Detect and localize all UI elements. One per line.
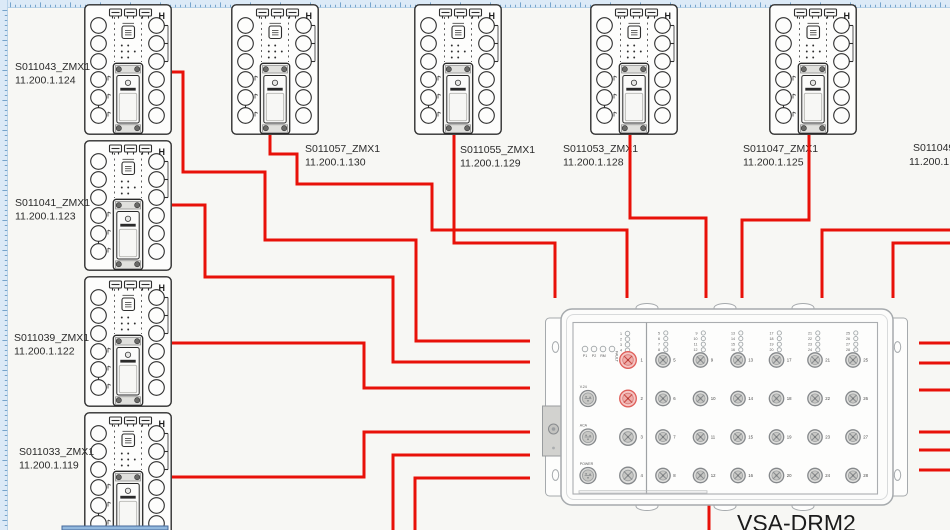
drm-led-num-6: 6 <box>658 337 660 341</box>
drm-port-21[interactable] <box>808 353 822 367</box>
diagram-canvas: H <box>0 0 950 530</box>
drm-led-num-19: 19 <box>770 343 774 347</box>
drm-led-19 <box>777 342 781 346</box>
drm-port-13[interactable] <box>731 353 745 367</box>
drm-port-9[interactable] <box>693 353 707 367</box>
drm-led-num-28: 28 <box>846 348 850 352</box>
drm-led-12 <box>701 348 705 352</box>
drm-port-16[interactable] <box>731 468 745 482</box>
drm-port-12[interactable] <box>693 468 707 482</box>
drm-port-num-17: 17 <box>787 358 792 363</box>
device-s011047-zmx1[interactable] <box>770 5 856 134</box>
drm-led-num-27: 27 <box>846 343 850 347</box>
drm-port-1[interactable] <box>620 352 637 369</box>
drm-led-14 <box>739 337 743 341</box>
drm-port-num-19: 19 <box>787 435 792 440</box>
label-s011033-ip: 11.200.1.119 <box>19 460 79 472</box>
drm-port-5[interactable] <box>656 353 670 367</box>
drm-aux-label-power: POWER <box>580 462 594 466</box>
drm-port-3[interactable] <box>620 429 637 446</box>
drm-led-9 <box>701 331 705 335</box>
drm-status-led-label-p2: P2 <box>592 354 596 358</box>
drm-port-num-10: 10 <box>711 396 716 401</box>
drm-led-num-8: 8 <box>658 348 660 352</box>
drm-led-num-25: 25 <box>846 331 850 335</box>
drm-port-num-22: 22 <box>825 396 830 401</box>
label-s011039-ip: 11.200.1.122 <box>14 346 75 358</box>
drm-port-22[interactable] <box>808 391 822 405</box>
drm-port-7[interactable] <box>656 430 670 444</box>
drm-status-led-label-fault: FAULT <box>615 351 619 363</box>
drm-led-3 <box>625 342 630 347</box>
drm-port-19[interactable] <box>769 430 783 444</box>
drm-status-led-fault <box>609 346 615 352</box>
drm-led-num-24: 24 <box>808 348 812 352</box>
drm-port-num-21: 21 <box>825 358 830 363</box>
drm-led-num-5: 5 <box>658 331 660 335</box>
drm-port-17[interactable] <box>769 353 783 367</box>
drm-port-23[interactable] <box>808 430 822 444</box>
drm-port-num-15: 15 <box>748 435 753 440</box>
drm-port-27[interactable] <box>846 430 860 444</box>
label-s011033-name: S011033_ZMX1 <box>19 446 94 458</box>
drm-port-num-27: 27 <box>863 435 868 440</box>
drm-port-num-16: 16 <box>748 473 753 478</box>
drm-led-num-11: 11 <box>694 343 698 347</box>
drm-port-num-25: 25 <box>863 358 868 363</box>
label-s011049-name: S011049 <box>913 142 950 154</box>
drm-led-num-22: 22 <box>808 337 812 341</box>
drm-panel <box>573 323 878 495</box>
drm-port-num-14: 14 <box>748 396 753 401</box>
drm-led-17 <box>777 331 781 335</box>
drm-led-num-9: 9 <box>696 331 698 335</box>
drm-port-num-18: 18 <box>787 396 792 401</box>
device-s011053-zmx1[interactable] <box>591 5 677 134</box>
drm-led-11 <box>701 342 705 346</box>
drm-aux-port-power[interactable] <box>580 468 596 484</box>
drm-port-11[interactable] <box>693 430 707 444</box>
drm-led-num-20: 20 <box>770 348 774 352</box>
drm-aux-port-aca[interactable] <box>580 429 596 445</box>
device-s011055-zmx1[interactable] <box>415 5 501 134</box>
drm-port-10[interactable] <box>693 391 707 405</box>
drm-led-num-7: 7 <box>658 343 660 347</box>
drm-led-num-3: 3 <box>620 343 622 347</box>
label-s011043-ip: 11.200.1.124 <box>15 75 76 87</box>
drm-status-led-p1 <box>582 346 588 352</box>
drm-led-15 <box>739 342 743 346</box>
drm-port-15[interactable] <box>731 430 745 444</box>
drm-port-num-11: 11 <box>711 435 716 440</box>
drm-status-led-label-rm: RM <box>600 354 606 358</box>
label-s011055-ip: 11.200.1.129 <box>460 158 521 170</box>
drm-port-num-12: 12 <box>711 473 716 478</box>
drm-aux-label-v24: V.24 <box>580 385 587 389</box>
drm-port-num-23: 23 <box>825 435 830 440</box>
drm-port-28[interactable] <box>846 468 860 482</box>
drm-aux-port-v24[interactable] <box>580 391 596 407</box>
drm-led-24 <box>816 348 820 352</box>
drm-led-18 <box>777 337 781 341</box>
drm-port-4[interactable] <box>620 467 637 484</box>
drm-led-num-16: 16 <box>731 348 735 352</box>
drm-port-25[interactable] <box>846 353 860 367</box>
label-s011047-name: S011047_ZMX1 <box>743 143 818 155</box>
label-s011039-name: S011039_ZMX1 <box>14 332 89 344</box>
label-s011053-ip: 11.200.1.128 <box>563 157 624 169</box>
drm-led-num-1: 1 <box>620 332 622 336</box>
drm-led-num-14: 14 <box>731 337 735 341</box>
drm-led-num-12: 12 <box>694 348 698 352</box>
drm-led-25 <box>854 331 858 335</box>
drm-led-num-18: 18 <box>770 337 774 341</box>
label-s011041-ip: 11.200.1.123 <box>15 211 76 223</box>
drm-title: VSA-DRM2 <box>737 510 856 530</box>
drm-led-21 <box>816 331 820 335</box>
drm-led-23 <box>816 342 820 346</box>
drm-led-num-4: 4 <box>620 349 622 353</box>
drm-led-6 <box>664 337 668 341</box>
partial-device-bottom[interactable] <box>62 526 168 530</box>
drm-led-26 <box>854 337 858 341</box>
drm-led-num-23: 23 <box>808 343 812 347</box>
drm-port-14[interactable] <box>731 391 745 405</box>
drm-status-led-p2 <box>591 346 597 352</box>
label-s011049-ip: 11.200.1 <box>909 156 949 168</box>
drm-port-num-26: 26 <box>863 396 868 401</box>
drm-led-8 <box>664 348 668 352</box>
device-s011057-zmx1[interactable] <box>232 5 318 134</box>
drm-port-8[interactable] <box>656 468 670 482</box>
drm-port-26[interactable] <box>846 391 860 405</box>
drm-led-27 <box>854 342 858 346</box>
drm-led-7 <box>664 342 668 346</box>
drm-port-num-13: 13 <box>748 358 753 363</box>
label-s011053-name: S011053_ZMX1 <box>563 143 638 155</box>
device-s011041-zmx1[interactable] <box>85 141 171 270</box>
drm-led-1 <box>625 331 630 336</box>
drm-led-28 <box>854 348 858 352</box>
drm-status-led-rm <box>600 346 606 352</box>
drm-led-10 <box>701 337 705 341</box>
drm-aux-label-aca: ACA <box>580 423 588 427</box>
ruler-left <box>0 0 8 530</box>
drm-led-22 <box>816 337 820 341</box>
drm-port-num-28: 28 <box>863 473 868 478</box>
drm-led-5 <box>664 331 668 335</box>
drm-port-20[interactable] <box>769 468 783 482</box>
drm-led-num-2: 2 <box>620 338 622 342</box>
drm-port-18[interactable] <box>769 391 783 405</box>
drm-led-2 <box>625 337 630 342</box>
device-s011043-zmx1[interactable] <box>85 5 171 134</box>
drm-port-num-24: 24 <box>825 473 830 478</box>
drm-led-13 <box>739 331 743 335</box>
drm-port-num-20: 20 <box>787 473 792 478</box>
drm-port-6[interactable] <box>656 391 670 405</box>
drm-led-num-21: 21 <box>808 331 812 335</box>
drm-led-num-10: 10 <box>694 337 698 341</box>
drm-led-16 <box>739 348 743 352</box>
device-s011039-zmx1[interactable] <box>85 277 171 406</box>
label-s011043-name: S011043_ZMX1 <box>15 61 90 73</box>
label-s011041-name: S011041_ZMX1 <box>15 197 90 209</box>
device-vsa-drm2[interactable]: P1P2RMFAULT12341234V.24ACAPOWER556677889… <box>543 304 908 511</box>
device-s011033-zmx1[interactable] <box>85 413 171 530</box>
drm-led-num-13: 13 <box>731 331 735 335</box>
drm-status-led-label-p1: P1 <box>583 354 587 358</box>
drm-port-24[interactable] <box>808 468 822 482</box>
label-s011047-ip: 11.200.1.125 <box>743 157 804 169</box>
drm-led-20 <box>777 348 781 352</box>
label-s011057-ip: 11.200.1.130 <box>305 157 366 169</box>
drm-led-num-26: 26 <box>846 337 850 341</box>
drm-port-2[interactable] <box>620 390 637 407</box>
label-s011057-name: S011057_ZMX1 <box>305 143 380 155</box>
drm-led-num-15: 15 <box>731 343 735 347</box>
drm-led-num-17: 17 <box>770 331 774 335</box>
label-s011055-name: S011055_ZMX1 <box>460 144 535 156</box>
